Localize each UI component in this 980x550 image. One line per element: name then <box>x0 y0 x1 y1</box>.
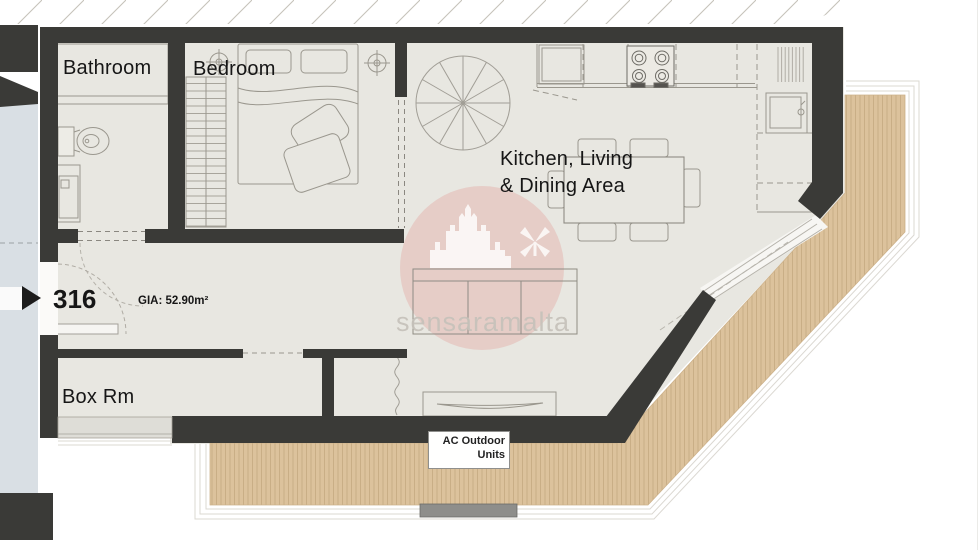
wardrobe <box>186 77 226 227</box>
wall-boxrm-partition-a <box>58 349 243 358</box>
corridor-panel <box>0 76 38 493</box>
floor-plan: Bathroom Bedroom Kitchen, Living & Dinin… <box>0 0 980 550</box>
box-room-label: Box Rm <box>62 386 134 409</box>
wall-bottom <box>172 416 610 443</box>
entrance-door-leaf <box>56 324 118 334</box>
ac-unit-slab <box>420 504 517 517</box>
wall-bath-bed-partition <box>168 43 185 230</box>
kitchen-living-line1: Kitchen, Living <box>500 146 633 173</box>
roof-hatch <box>0 0 858 24</box>
stove <box>627 46 674 88</box>
bedroom-label: Bedroom <box>193 58 276 81</box>
wall-bedroom-right <box>395 27 407 97</box>
ac-label-line2: Units <box>431 448 505 462</box>
spiral-staircase <box>416 56 510 150</box>
wall-boxrm-partition-stem <box>322 358 334 418</box>
kitchen-living-line2: & Dining Area <box>500 173 633 200</box>
kitchen-living-label: Kitchen, Living & Dining Area <box>500 146 633 200</box>
bathroom-label: Bathroom <box>63 57 151 80</box>
wall-right <box>812 43 843 184</box>
watermark-text: sensaramalta <box>378 307 588 338</box>
neighbor-wall-top <box>0 25 38 72</box>
wall-left-lower <box>40 335 58 438</box>
neighbor-wall-bottom <box>0 493 53 540</box>
ac-outdoor-units-label: AC Outdoor Units <box>428 431 510 469</box>
wall-left-upper <box>40 27 58 262</box>
wall-boxrm-partition-b <box>303 349 407 358</box>
unit-number: 316 <box>53 284 96 315</box>
ac-label-line1: AC Outdoor <box>431 434 505 448</box>
gia-label: GIA: 52.90m² <box>138 295 208 307</box>
wall-top <box>40 27 843 43</box>
boxrm-exterior-door <box>58 417 172 438</box>
